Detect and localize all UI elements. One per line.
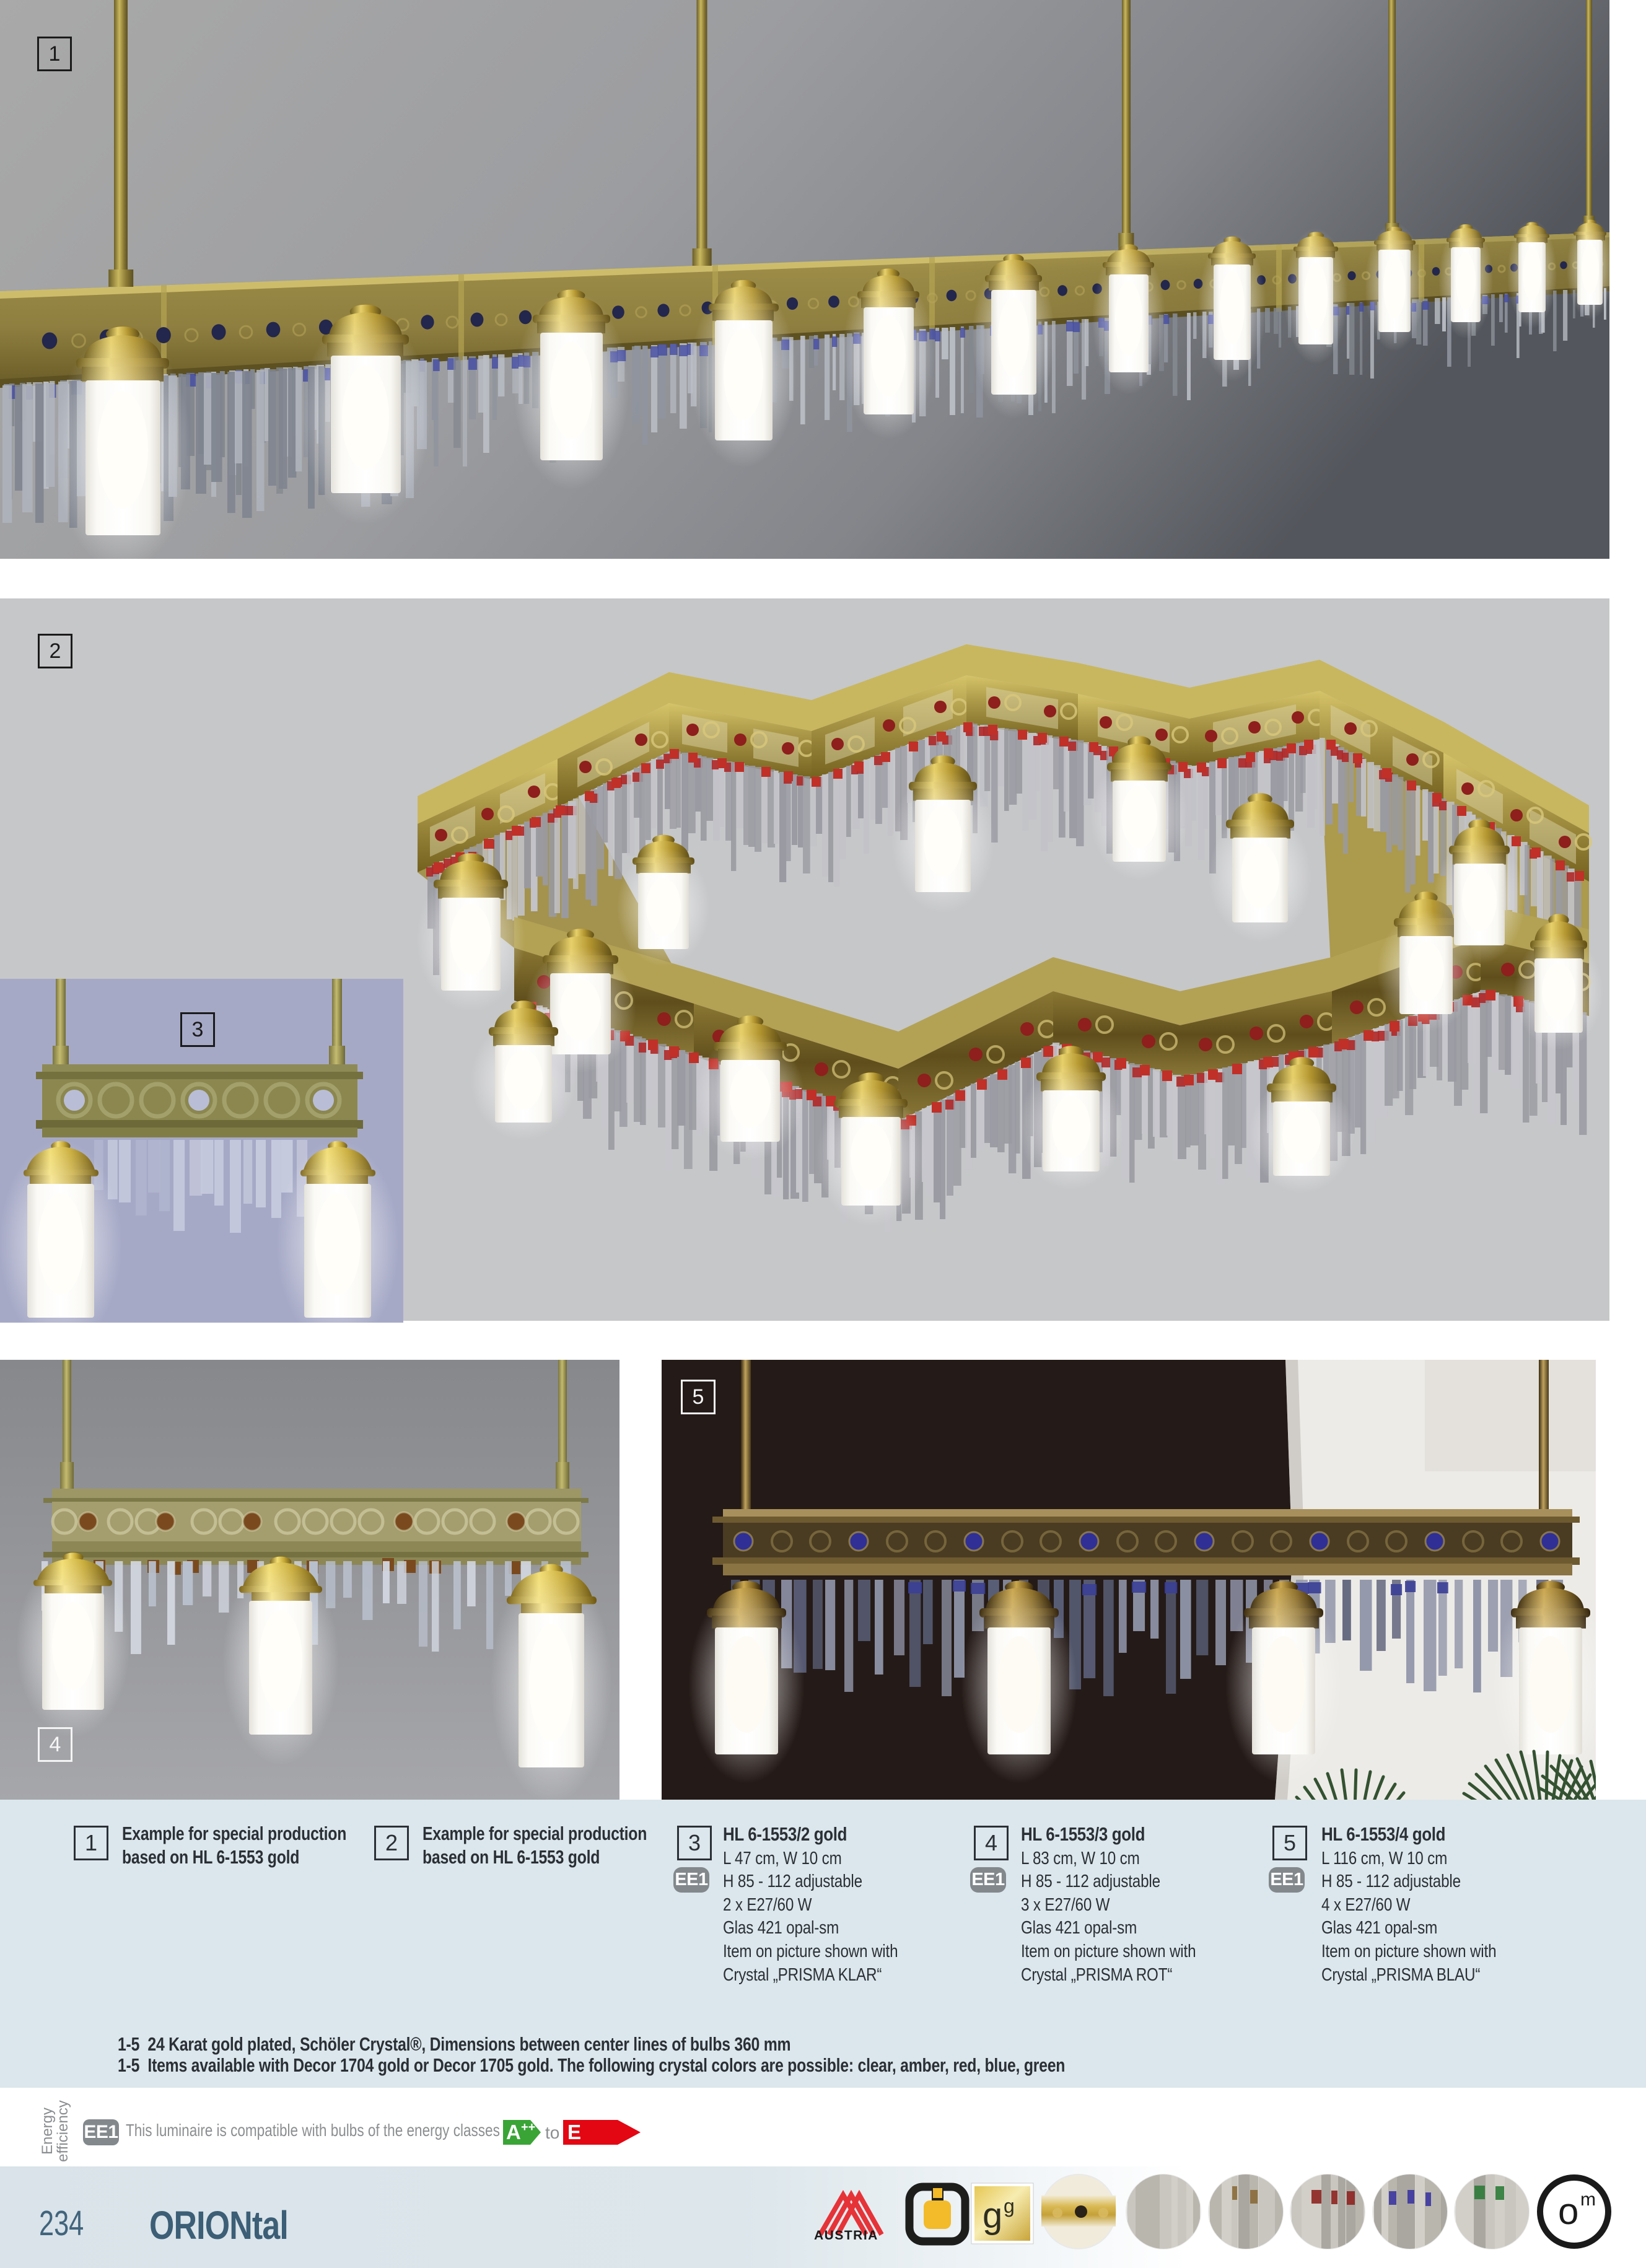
svg-text:g: g [983,2196,1002,2236]
svg-text:o: o [1558,2191,1578,2232]
svg-text:m: m [1580,2189,1596,2210]
svg-text:A: A [506,2121,521,2143]
svg-text:g: g [1004,2195,1015,2217]
svg-text:E: E [567,2121,581,2143]
svg-text:++: ++ [521,2121,535,2134]
svg-text:to: to [545,2123,559,2142]
svg-text:AUSTRIA: AUSTRIA [814,2228,878,2243]
